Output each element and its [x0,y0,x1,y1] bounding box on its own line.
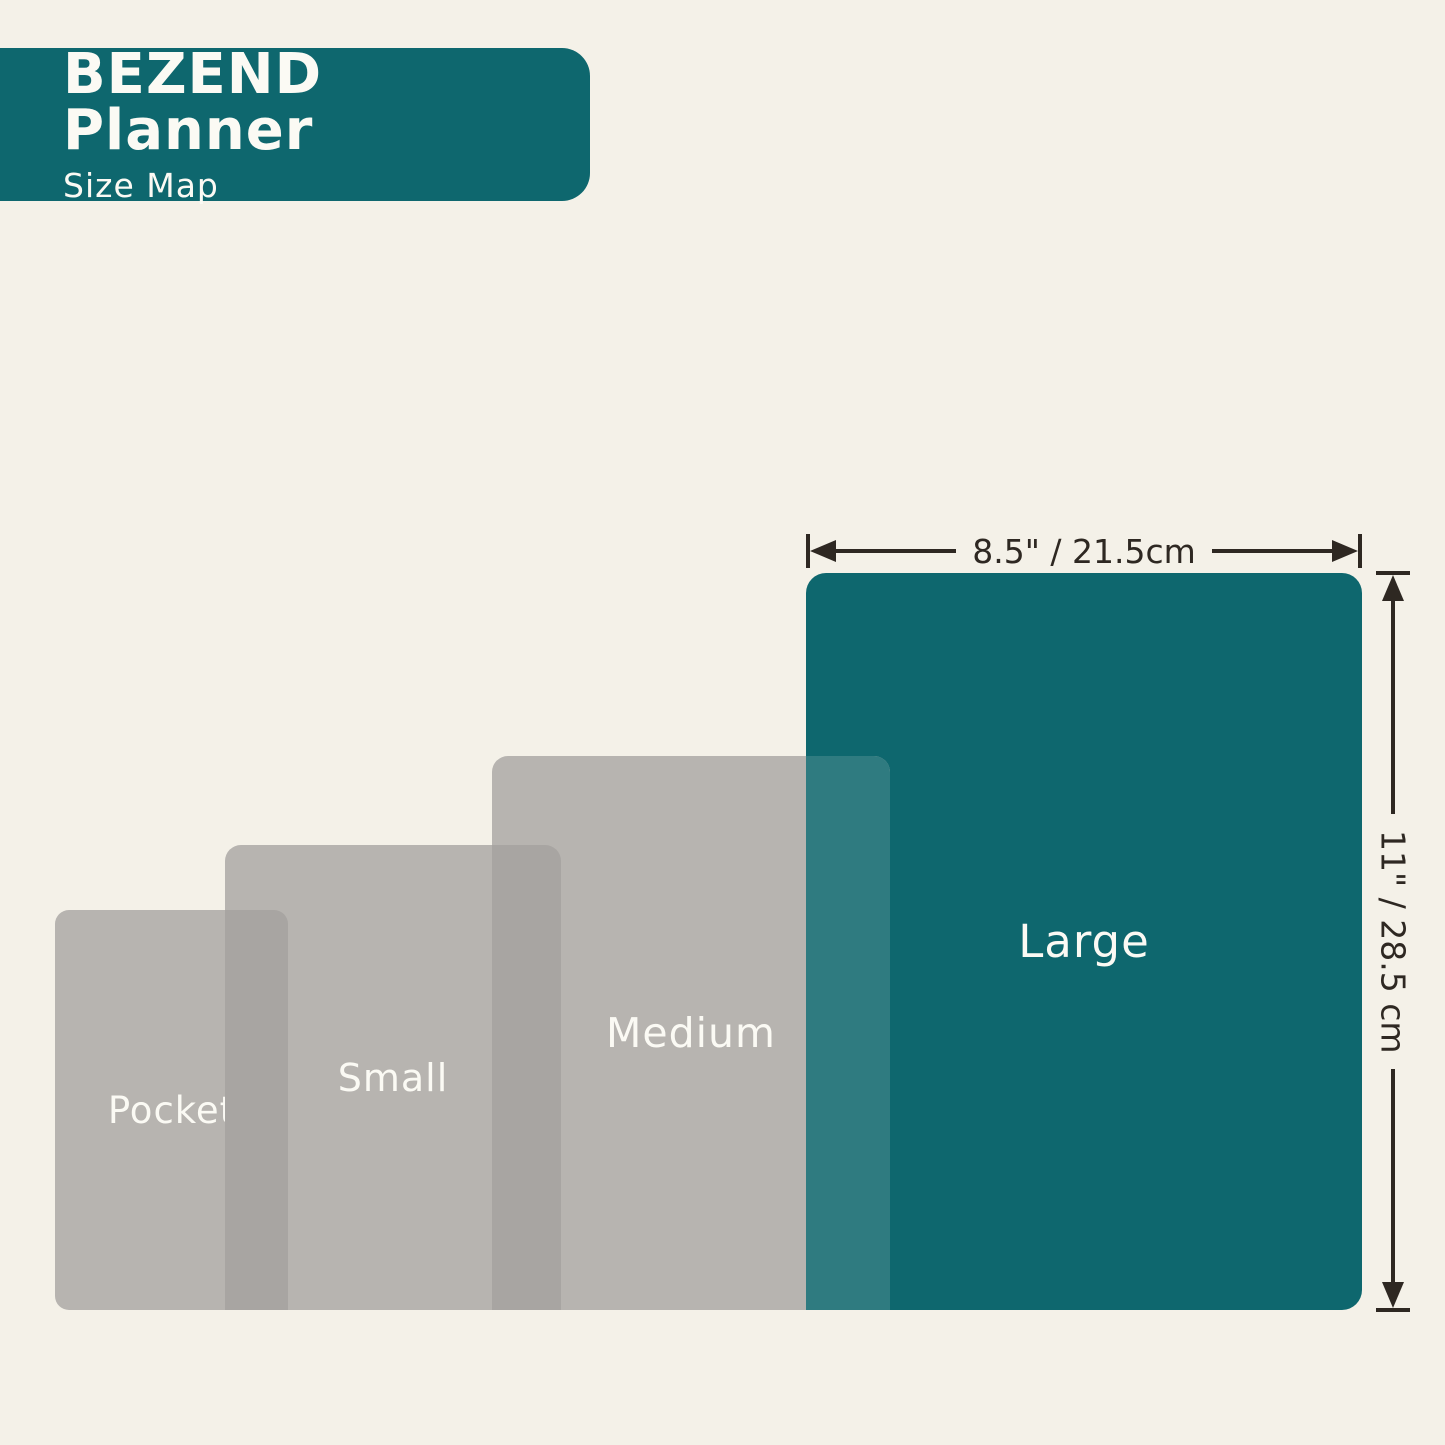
arrow-down-icon [1382,1282,1404,1308]
width-dimension: 8.5" / 21.5cm [806,534,1362,568]
arrow-up-icon [1382,575,1404,601]
width-dimension-line-right [1212,549,1332,553]
arrow-right-icon [1332,540,1358,562]
width-dimension-line-left [836,549,956,553]
size-label-pocket: Pocket [108,1089,235,1132]
height-dimension-label: 11" / 28.5 cm [1377,830,1410,1054]
width-dimension-label: 8.5" / 21.5cm [972,535,1196,568]
width-dimension-right-tick [1358,534,1362,568]
size-label-small: Small [338,1056,449,1100]
arrow-left-icon [810,540,836,562]
page-subtitle: Size Map [63,169,590,202]
header-banner: BEZEND Planner Size Map [0,48,590,201]
size-map-infographic: BEZEND Planner Size Map Large Medium Sma… [0,0,1445,1445]
overlap-pocket-small [225,910,288,1310]
height-dimension-line-top [1391,601,1395,814]
overlap-medium-large [806,756,890,1310]
height-dimension: 11" / 28.5 cm [1376,571,1410,1312]
overlap-small-medium [492,845,561,1310]
size-label-medium: Medium [606,1009,776,1057]
height-dimension-bottom-tick [1376,1308,1410,1312]
size-label-large: Large [1018,915,1150,968]
page-title: BEZEND Planner [63,47,590,159]
height-dimension-line-bottom [1391,1069,1395,1282]
